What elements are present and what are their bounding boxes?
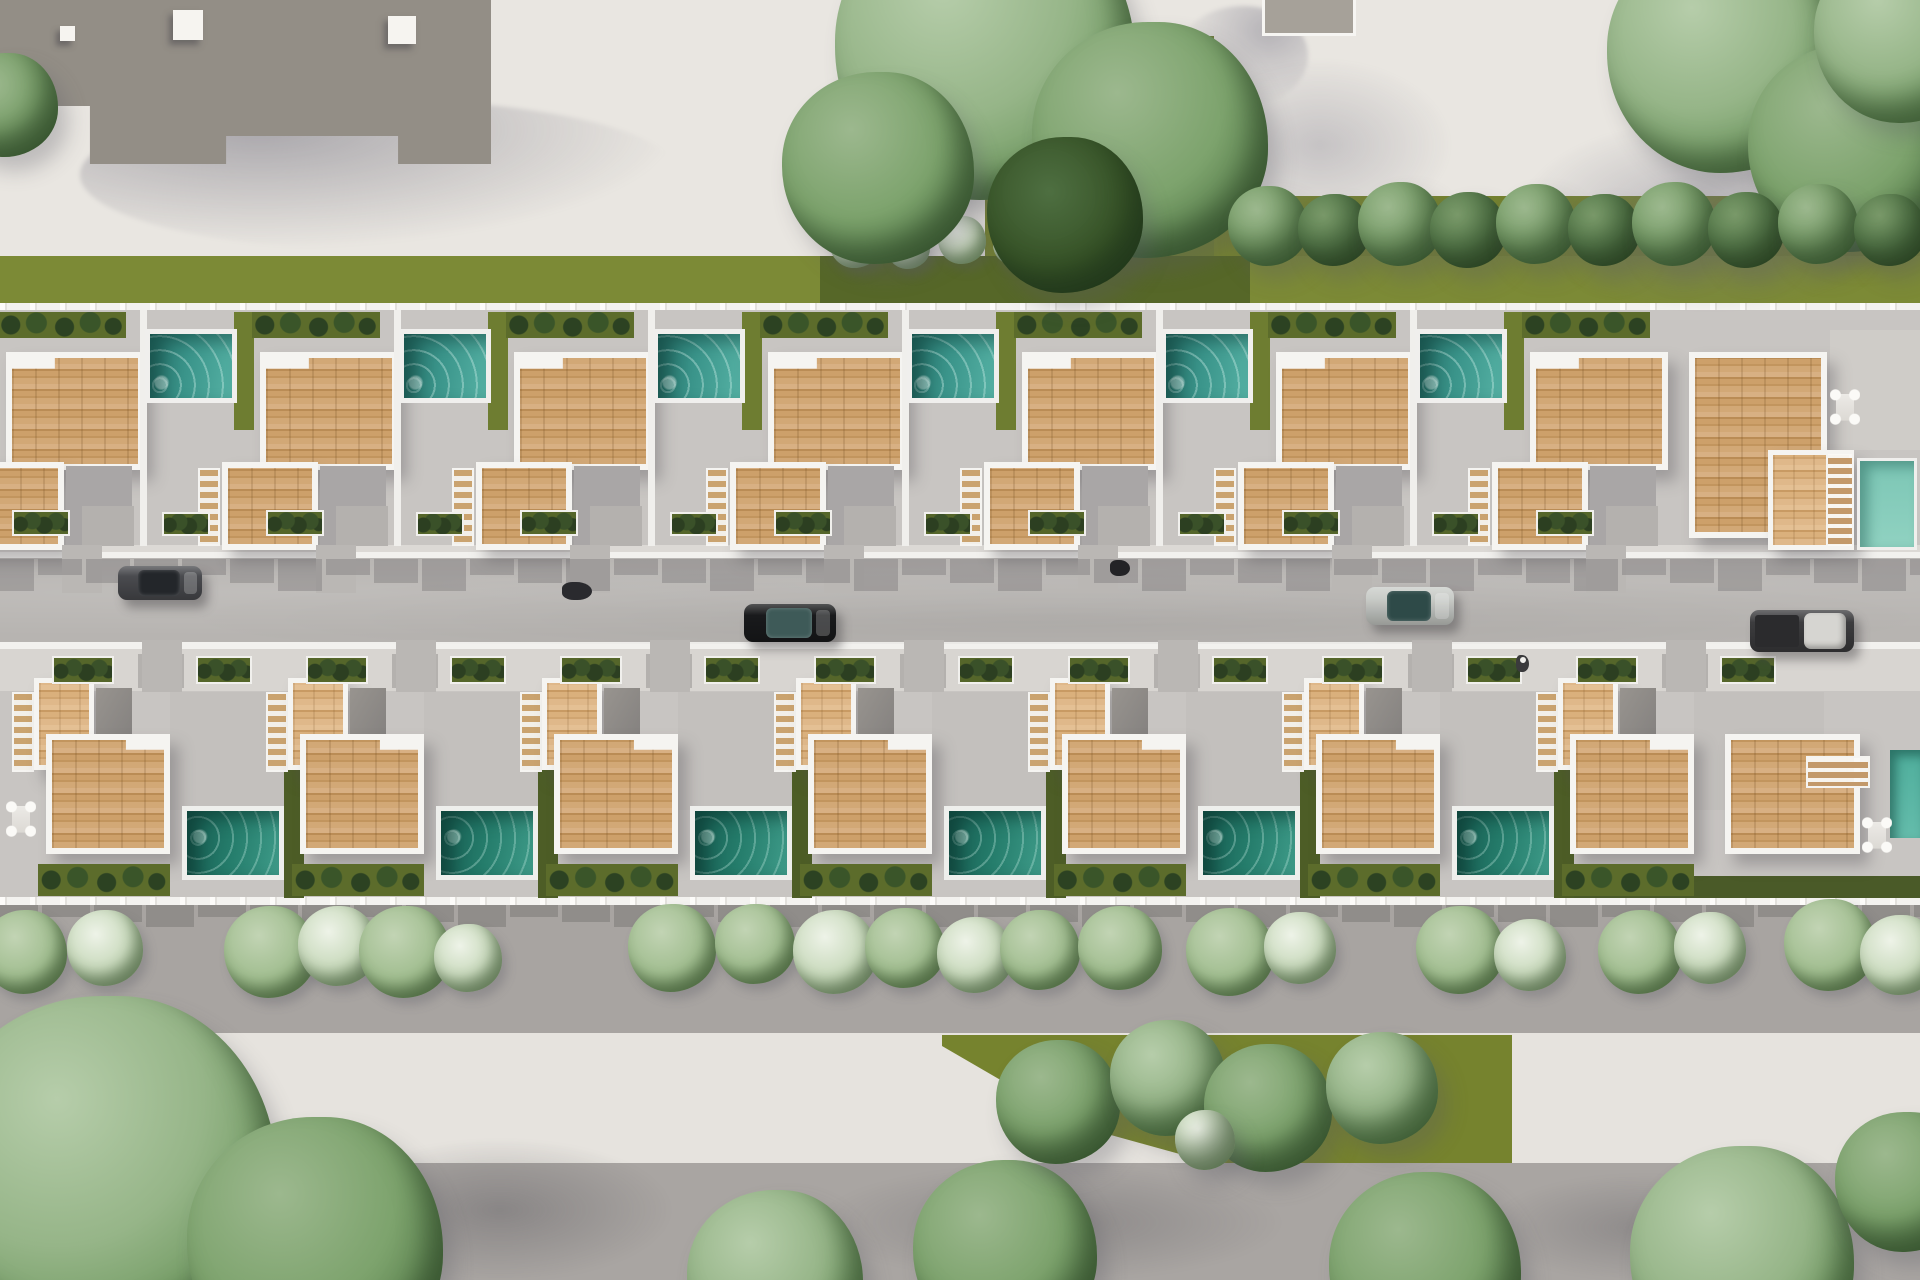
cast-shadow-tooth [230,559,274,583]
villa-entry-stairs [520,692,542,772]
villa-rear-hedge-row [252,312,380,338]
villa-front-planter [1028,510,1086,536]
villa-front-planter [1720,656,1776,684]
villa-grass-strip [234,312,254,430]
villa-gray-roof-wedge [604,688,640,740]
villa-rear-hedge-row [760,312,888,338]
villa-rear-hedge-row [38,864,170,896]
cast-shadow-tooth [902,559,946,575]
pickup-truck-bed [1755,615,1799,647]
silver-car-hood-highlight [1435,593,1449,619]
tree [782,72,974,264]
villa-pool [1203,811,1295,875]
outdoor-table-set [1862,816,1892,854]
villa-pool [150,334,232,398]
small-building-roof [1262,0,1356,36]
villa-front-planter [52,656,114,684]
villa-front-planter [958,656,1014,684]
villa-entry-stairs [12,692,34,772]
villa-rear-hedge-row [1268,312,1396,338]
villa-garage-block [1352,506,1404,546]
tree [1708,192,1784,268]
cast-shadow-tooth [1766,559,1810,575]
rooftop-ac-unit [388,16,416,44]
tree [987,137,1143,293]
villa-driveway-apron [142,640,182,692]
villa-front-planter [924,512,972,536]
cast-shadow-tooth [1914,905,1920,917]
villa-grass-strip [996,312,1016,430]
villa-rear-hedge-row [546,864,678,896]
villa-front-planter [1322,656,1384,684]
villa-roof-terrace-wood [1322,740,1434,848]
villa-driveway-apron [1158,640,1198,692]
dark-gray-car-glass [138,570,180,596]
tree [996,1040,1120,1164]
villa-garage-block [1098,506,1150,546]
villa-entry-stairs [1282,692,1304,772]
bush [628,904,716,992]
villa-pool [1457,811,1549,875]
villa-front-planter [1536,510,1594,536]
bush [715,904,795,984]
rooftop-ac-unit [173,10,203,40]
cast-shadow-tooth [518,559,562,583]
villa-gray-roof-wedge [350,688,386,740]
tree [1228,186,1308,266]
villa-garage-block [844,506,896,546]
cast-shadow-tooth [1046,559,1090,575]
bush [1264,912,1336,984]
cast-shadow-tooth [950,559,994,583]
corner-villa-pool [1857,458,1917,550]
villa-rear-hedge-row [1308,864,1440,896]
black-car-hood-highlight [816,610,831,636]
villa-gray-roof-wedge [1112,688,1148,740]
cast-shadow-tooth [710,559,754,591]
villa-roof-terrace-wood [1536,358,1662,464]
cast-shadow-tooth [758,559,802,575]
villa-garage-block [1606,506,1658,546]
cast-shadow-tooth [854,559,898,591]
bush [1494,919,1566,991]
villa-front-planter [1068,656,1130,684]
villa-roof-terrace-wood [266,358,392,464]
cast-shadow-tooth [1286,559,1330,591]
villa-rear-hedge-row [1522,312,1650,338]
cast-shadow-tooth [998,559,1042,591]
villa-roof-terrace-wood [12,358,138,464]
villa-gray-roof-wedge [1620,688,1656,740]
villa-driveway-apron [650,640,690,692]
outdoor-table-set [1830,388,1860,426]
villa-gray-roof-wedge [1366,688,1402,740]
rooftop-ac-unit [60,26,75,41]
cast-shadow-tooth [1622,559,1666,575]
bush [434,924,502,992]
corner-villa-pool [1890,750,1920,838]
tree [1854,194,1920,266]
silver-car-glass [1387,591,1431,621]
villa-pool [695,811,787,875]
cast-shadow-tooth [1142,559,1186,591]
cast-shadow-tooth [1910,559,1920,575]
villa-entry-stairs [1028,692,1050,772]
tree [1430,192,1506,268]
villa-front-planter [1212,656,1268,684]
villa-grass-strip [1504,312,1524,430]
cast-shadow-tooth [1190,559,1234,575]
villa-front-planter [12,510,70,536]
cast-shadow-tooth [1550,905,1598,927]
cast-shadow-tooth [1814,559,1858,583]
villa-rear-hedge-row [800,864,932,896]
villa-front-planter [1282,510,1340,536]
villa-rear-hedge-row [1562,864,1694,896]
cast-shadow-tooth [0,559,34,591]
villa-front-planter [416,512,464,536]
villa-rear-hedge-row [506,312,634,338]
villa-front-planter [1178,512,1226,536]
villa-roof-terrace-wood [52,740,164,848]
villa-front-planter [814,656,876,684]
pedestrian-on-sidewalk-head [1520,657,1526,663]
villa-front-planter [1466,656,1522,684]
rear-fence [0,303,1920,310]
villa-front-planter [306,656,368,684]
cast-shadow-tooth [1478,559,1522,575]
corner-villa-pergola [1826,452,1854,548]
villa-driveway-apron [1666,640,1706,692]
cast-shadow-tooth [326,559,370,575]
tree [1778,184,1858,264]
pickup-truck-cab [1804,613,1846,649]
villa-pool [1420,334,1502,398]
bush [865,908,945,988]
villa-garage-block [82,506,134,546]
cast-shadow-tooth [278,559,322,591]
villa-front-planter [162,512,210,536]
tree [1496,184,1576,264]
cast-shadow-tooth [146,905,194,927]
cast-shadow-tooth [1382,559,1426,583]
villa-front-planter [704,656,760,684]
aerial-development-render [0,0,1920,1280]
villa-roof-terrace-wood [814,740,926,848]
villa-front-planter [774,510,832,536]
black-car-glass [766,608,812,638]
villa-grass-strip [1250,312,1270,430]
dark-gray-car-hood-highlight [184,572,197,594]
villa-roof-terrace-wood [1068,740,1180,848]
villa-gray-roof-wedge [96,688,132,740]
corner-villa-pergola [1806,756,1870,788]
villa-driveway-apron [904,640,944,692]
villa-front-planter [450,656,506,684]
villa-roof-terrace-wood [1576,740,1688,848]
villa-pool [912,334,994,398]
cast-shadow-tooth [38,559,82,575]
villa-gray-roof-wedge [858,688,894,740]
cast-shadow-tooth [470,559,514,575]
villa-pool [404,334,486,398]
outdoor-table-set [6,800,36,838]
villa-entry-stairs [774,692,796,772]
bottom-fence [0,897,1920,905]
tree [1632,182,1716,266]
cast-shadow-tooth [1670,559,1714,583]
cast-shadow-tooth [1718,559,1762,591]
villa-pool [441,811,533,875]
cast-shadow-tooth [1334,559,1378,575]
tree [1326,1032,1438,1144]
villa-front-planter [1576,656,1638,684]
cyclist-on-road [562,582,592,600]
cast-shadow-tooth [1526,559,1570,583]
villa-rear-hedge-row [292,864,424,896]
villa-roof-terrace-wood [774,358,900,464]
bush [1078,906,1162,990]
villa-entry-stairs [266,692,288,772]
villa-rear-hedge-row [1054,864,1186,896]
villa-front-planter [520,510,578,536]
villa-garage-block [590,506,642,546]
villa-front-planter [1432,512,1480,536]
tree [1175,1110,1235,1170]
villa-garage-block [336,506,388,546]
villa-pool [1166,334,1248,398]
tree [1568,194,1640,266]
villa-front-planter [196,656,252,684]
cast-shadow-tooth [510,905,558,917]
villa-pool [187,811,279,875]
villa-grass-strip [742,312,762,430]
bush [67,910,143,986]
villa-driveway-apron [396,640,436,692]
bush [1674,912,1746,984]
villa-rear-hedge-row [0,312,126,338]
bush [1000,910,1080,990]
villa-roof-terrace-wood [1028,358,1154,464]
bush [1416,906,1504,994]
cast-shadow-tooth [662,559,706,583]
villa-grass-strip [488,312,508,430]
villa-roof-terrace-wood [1282,358,1408,464]
villa-front-planter [560,656,622,684]
villa-roof-terrace-wood [520,358,646,464]
villa-pool [949,811,1041,875]
villa-front-planter [670,512,718,536]
cast-shadow-tooth [1238,559,1282,583]
villa-pool [658,334,740,398]
villa-front-planter [266,510,324,536]
cast-shadow-tooth [422,559,466,591]
cast-shadow-tooth [562,905,610,922]
villa-entry-stairs [1536,692,1558,772]
bush [1186,908,1274,996]
cast-shadow-tooth [806,559,850,583]
villa-roof-terrace-wood [306,740,418,848]
bush [1598,910,1682,994]
cast-shadow-tooth [1862,559,1906,591]
cast-shadow-tooth [374,559,418,583]
cast-shadow-tooth [1574,559,1618,591]
villa-roof-terrace-wood [560,740,672,848]
villa-rear-hedge-row [1014,312,1142,338]
pedestrian-on-road [1110,560,1130,576]
cast-shadow-tooth [1342,905,1390,922]
cast-shadow-tooth [614,559,658,575]
cast-shadow-tooth [198,905,246,917]
villa-driveway-apron [1412,640,1452,692]
